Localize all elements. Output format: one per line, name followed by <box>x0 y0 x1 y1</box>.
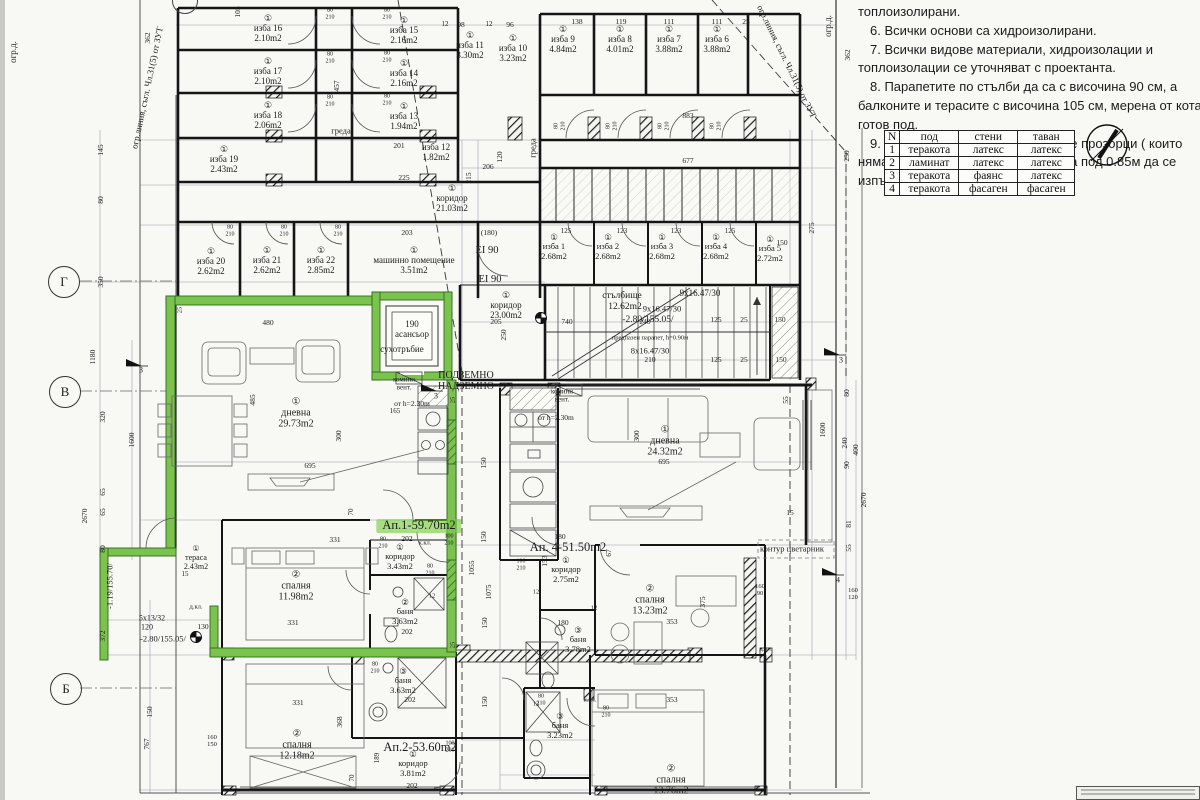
walls-layer <box>176 8 834 795</box>
finish-table-cell: 2 <box>885 157 900 170</box>
grid-bubble-v: В <box>49 376 81 408</box>
note-line: 7. Всички видове материали, хидроизолаци… <box>858 41 1200 60</box>
finish-table-cell: фаянс <box>959 170 1018 183</box>
elevator <box>386 306 438 372</box>
finish-table-cell: латекс <box>959 144 1018 157</box>
grid-bubble-label: Г <box>60 274 68 290</box>
symbols-layer <box>126 313 846 643</box>
finish-table-cell: 4 <box>885 183 900 196</box>
finish-table-header: под <box>900 131 959 144</box>
finish-table-cell: ламинат <box>900 157 959 170</box>
finish-table-header-row: N под стени таван <box>885 131 1075 144</box>
finish-table-cell: 3 <box>885 170 900 183</box>
grid-bubble-g: Г <box>48 266 80 298</box>
finish-table-header: N <box>885 131 900 144</box>
grid-bubble-label: Б <box>62 681 69 697</box>
finish-table-cell: теракота <box>900 144 959 157</box>
finish-table-header: таван <box>1018 131 1075 144</box>
grid-bubble-label: В <box>61 384 70 400</box>
stairs <box>545 287 770 379</box>
finish-table-row: 1 теракота латекс латекс <box>885 144 1075 157</box>
finish-table-row: 2 ламинат латекс латекс <box>885 157 1075 170</box>
finish-table-header: стени <box>959 131 1018 144</box>
finish-table-cell: теракота <box>900 183 959 196</box>
note-line: топлоизолирани. <box>858 3 1200 22</box>
title-block-fragment <box>1076 786 1200 800</box>
finish-table-cell: латекс <box>1018 144 1075 157</box>
north-arrow-icon <box>1084 122 1130 168</box>
note-line: балконите и терасите с височина 105 см, … <box>858 97 1200 116</box>
finish-table-cell: фасаген <box>1018 183 1075 196</box>
note-line: 8. Парапетите по стълби да са с височина… <box>858 78 1200 97</box>
finish-table-row: 4 теракота фасаген фасаген <box>885 183 1075 196</box>
note-line: топлоизолации се уточняват с проектанта. <box>858 59 1200 78</box>
finish-table-cell: теракота <box>900 170 959 183</box>
windows-layer <box>240 381 811 791</box>
note-line: 6. Всички основи са хидроизолирани. <box>858 22 1200 41</box>
finish-table: N под стени таван 1 теракота латекс лате… <box>884 130 1075 196</box>
title-block-text-smudge <box>1081 793 1195 795</box>
finish-table-cell: латекс <box>959 157 1018 170</box>
grid-bubble-b: Б <box>50 673 82 705</box>
title-block-text-smudge <box>1081 789 1195 791</box>
finish-table-cell: 1 <box>885 144 900 157</box>
furniture-layer <box>158 340 800 788</box>
hatch-piers-layer <box>222 86 816 795</box>
finish-table-cell: латекс <box>1018 170 1075 183</box>
finish-table-cell: латекс <box>1018 157 1075 170</box>
finish-table-row: 3 теракота фаянс латекс <box>885 170 1075 183</box>
finish-table-cell: фасаген <box>959 183 1018 196</box>
scanned-floor-plan-sheet: ① изба 16 2.10m2① изба 15 2.16m2① изба 1… <box>0 0 1200 800</box>
